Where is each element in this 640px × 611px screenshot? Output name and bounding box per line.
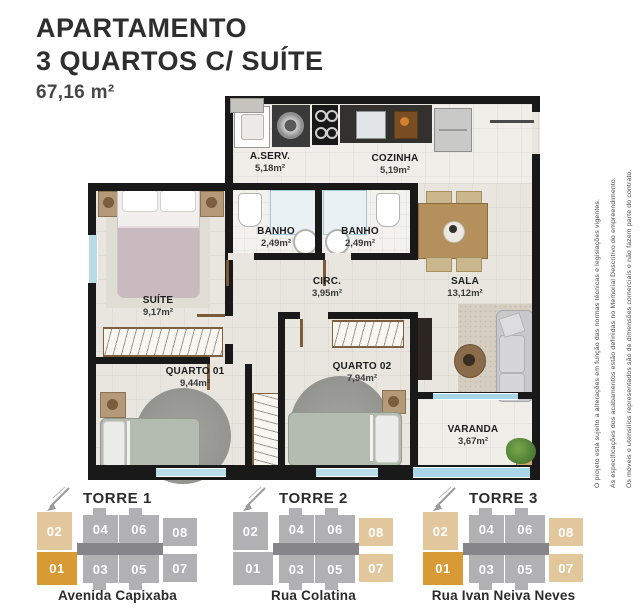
window [88,235,98,283]
unit-02: 02 [37,512,72,550]
corridor-bar [77,543,163,555]
entrance-door-leaf [490,120,534,123]
title-line1: APARTAMENTO [36,12,324,45]
room-label-sala: SALA 13,12m² [415,276,515,300]
room-area: 9,44m² [145,378,245,390]
street-name: Rua Colatina [221,588,406,603]
disclaimer-line1: Os móveis e utensílios representados são… [624,88,637,488]
wall-segment [410,312,418,470]
unit-06: 06 [505,515,545,543]
room-name: CIRC. [277,276,377,288]
tower-3: TORRE 3 02 04 06 08 01 03 05 07 Rua Ivan… [411,485,596,609]
wall-segment [88,183,233,191]
unit-04: 04 [469,515,504,543]
unit-04: 04 [279,515,314,543]
room-label-suite: SUÍTE 9,17m² [108,295,208,319]
room-area: 13,12m² [415,288,515,300]
tower-1: TORRE 1 02 04 06 08 01 03 05 07 Avenida … [25,485,210,609]
door-opening [228,253,254,260]
room-area: 2,49m² [310,238,410,250]
wall-segment [532,96,540,112]
unit-02: 02 [233,512,268,550]
bedroom2-wardrobe [332,320,404,348]
street-name: Rua Ivan Neiva Neves [411,588,596,603]
room-area: 5,18m² [220,163,320,175]
corridor-bar [463,543,549,555]
laundry-window-box [230,98,264,113]
wall-segment [278,312,285,470]
tower-3-diagram: 02 04 06 08 01 03 05 07 [423,512,583,584]
floor-plan: A.SERV. 5,18m² COZINHA 5,19m² BANHO 2,49… [88,96,540,480]
suite-wardrobe [103,327,223,357]
wall-segment [410,183,418,260]
room-label-varanda: VARANDA 3,67m² [423,424,523,448]
unit-03: 03 [469,555,504,583]
dining-chair [426,257,452,272]
dining-chair [456,257,482,272]
tower-title: TORRE 3 [411,490,596,507]
disclaimer-line3: O projeto está sujeito a alterações em f… [592,88,605,488]
room-name: BANHO [310,226,410,238]
bedroom2-nightstand [382,390,406,414]
wall-segment [245,364,252,470]
window [156,468,226,477]
sofa [496,310,534,402]
tower-title: TORRE 1 [25,490,210,507]
unit-01: 01 [233,552,273,585]
room-area: 7,94m² [312,373,412,385]
room-name: SALA [415,276,515,288]
stove [312,105,338,145]
floorplan-page: APARTAMENTO 3 QUARTOS C/ SUÍTE 67,16 m² … [0,0,640,611]
wall-segment [88,357,210,364]
room-label-quarto1: QUARTO 01 9,44m² [145,366,245,390]
washing-machine [272,105,310,147]
bedroom1-bed [100,418,200,470]
wall-segment [532,154,540,480]
room-name: QUARTO 02 [312,361,412,373]
wall-segment [328,312,418,319]
kitchen-counter [340,105,432,143]
wall-segment [225,96,540,104]
room-label-aserv: A.SERV. 5,18m² [220,151,320,175]
tower-2: TORRE 2 02 04 06 08 01 03 05 07 Rua Cola… [221,485,406,609]
door-leaf [300,319,303,347]
balcony-glass [413,467,530,478]
legal-disclaimer: Os móveis e utensílios representados são… [592,88,637,488]
balcony-door-glass [433,393,518,400]
suite-double-bed [117,185,200,297]
fridge [434,108,472,152]
disclaimer-line2: As especificações dos acabamentos estão … [608,88,621,488]
room-area: 5,19m² [345,165,445,177]
room-area: 3,95m² [277,288,377,300]
tower-1-diagram: 02 04 06 08 01 03 05 07 [37,512,197,584]
unit-06: 06 [315,515,355,543]
corridor-bar [273,543,359,555]
coffee-table [454,344,486,378]
unit-02: 02 [423,512,458,550]
dining-table [418,203,488,259]
room-area: 3,67m² [423,436,523,448]
unit-04: 04 [83,515,118,543]
room-label-banho2: BANHO 2,49m² [310,226,410,250]
unit-08: 08 [359,518,393,546]
wall-segment [225,344,233,364]
unit-07: 07 [163,554,197,582]
room-name: A.SERV. [220,151,320,163]
door-opening [325,253,351,260]
room-name: VARANDA [423,424,523,436]
wall-segment [88,183,96,480]
unit-06: 06 [119,515,159,543]
unit-08: 08 [163,518,197,546]
unit-03: 03 [83,555,118,583]
unit-05: 05 [315,555,355,583]
room-label-circ: CIRC. 3,95m² [277,276,377,300]
unit-07: 07 [359,554,393,582]
unit-01: 01 [423,552,463,585]
unit-05: 05 [119,555,159,583]
room-label-cozinha: COZINHA 5,19m² [345,153,445,177]
suite-nightstand-right [200,191,224,217]
unit-05: 05 [505,555,545,583]
bedroom2-bed [288,412,402,466]
room-label-quarto2: QUARTO 02 7,94m² [312,361,412,385]
title-line2: 3 QUARTOS C/ SUÍTE [36,45,324,78]
bath2-toilet [376,193,400,227]
room-name: QUARTO 01 [145,366,245,378]
room-area: 9,17m² [108,307,208,319]
window [316,468,378,477]
unit-08: 08 [549,518,583,546]
hall-closet [252,393,280,468]
page-title: APARTAMENTO 3 QUARTOS C/ SUÍTE 67,16 m² [36,12,324,104]
room-name: COZINHA [345,153,445,165]
unit-03: 03 [279,555,314,583]
bath1-toilet [238,193,262,227]
tower-title: TORRE 2 [221,490,406,507]
unit-01: 01 [37,552,77,585]
door-leaf [226,260,229,286]
bedroom1-nightstand [100,392,126,418]
street-name: Avenida Capixaba [25,588,210,603]
unit-07: 07 [549,554,583,582]
room-name: SUÍTE [108,295,208,307]
wall-segment [285,312,300,319]
tower-2-diagram: 02 04 06 08 01 03 05 07 [233,512,393,584]
